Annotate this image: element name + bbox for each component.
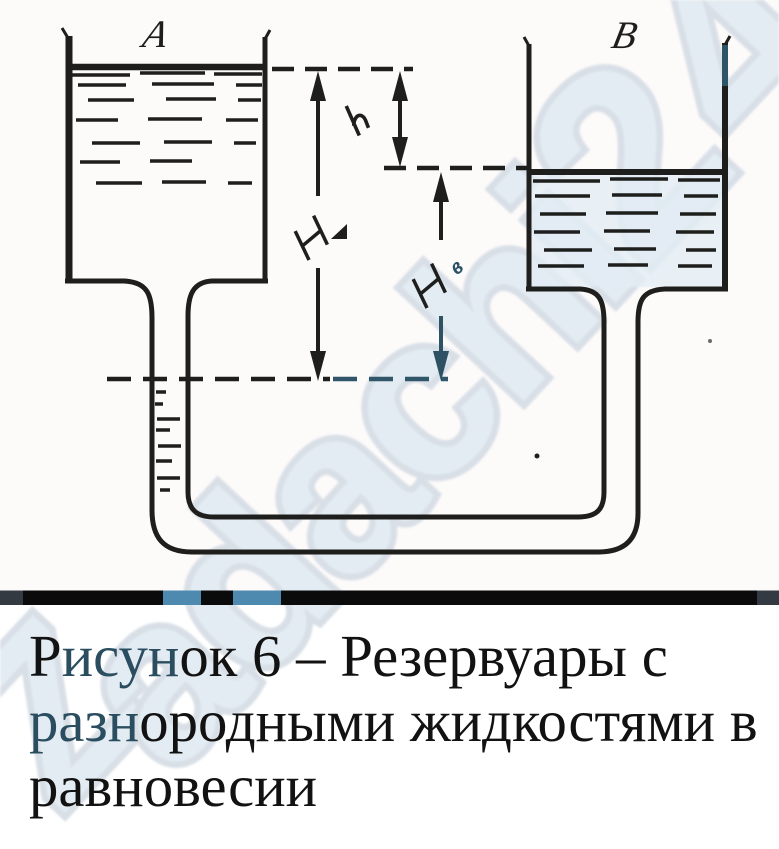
svg-text:A: A — [136, 12, 173, 56]
svg-text:B: B — [608, 13, 641, 57]
svg-text:в: в — [444, 253, 468, 279]
